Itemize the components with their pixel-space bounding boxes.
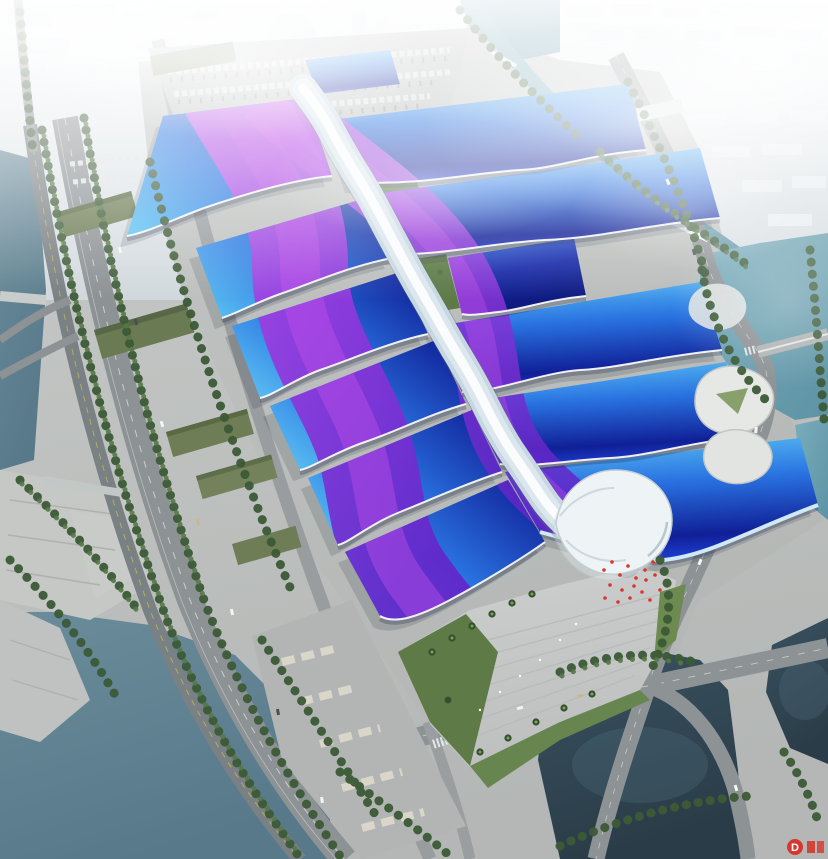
watermark-glyph-2 [817, 841, 824, 853]
watermark-letter: D [791, 842, 799, 854]
watermark-glyph-1 [807, 841, 815, 853]
convention-center-aerial-render: D [0, 0, 828, 859]
aerial-render-stage: D [0, 0, 828, 859]
